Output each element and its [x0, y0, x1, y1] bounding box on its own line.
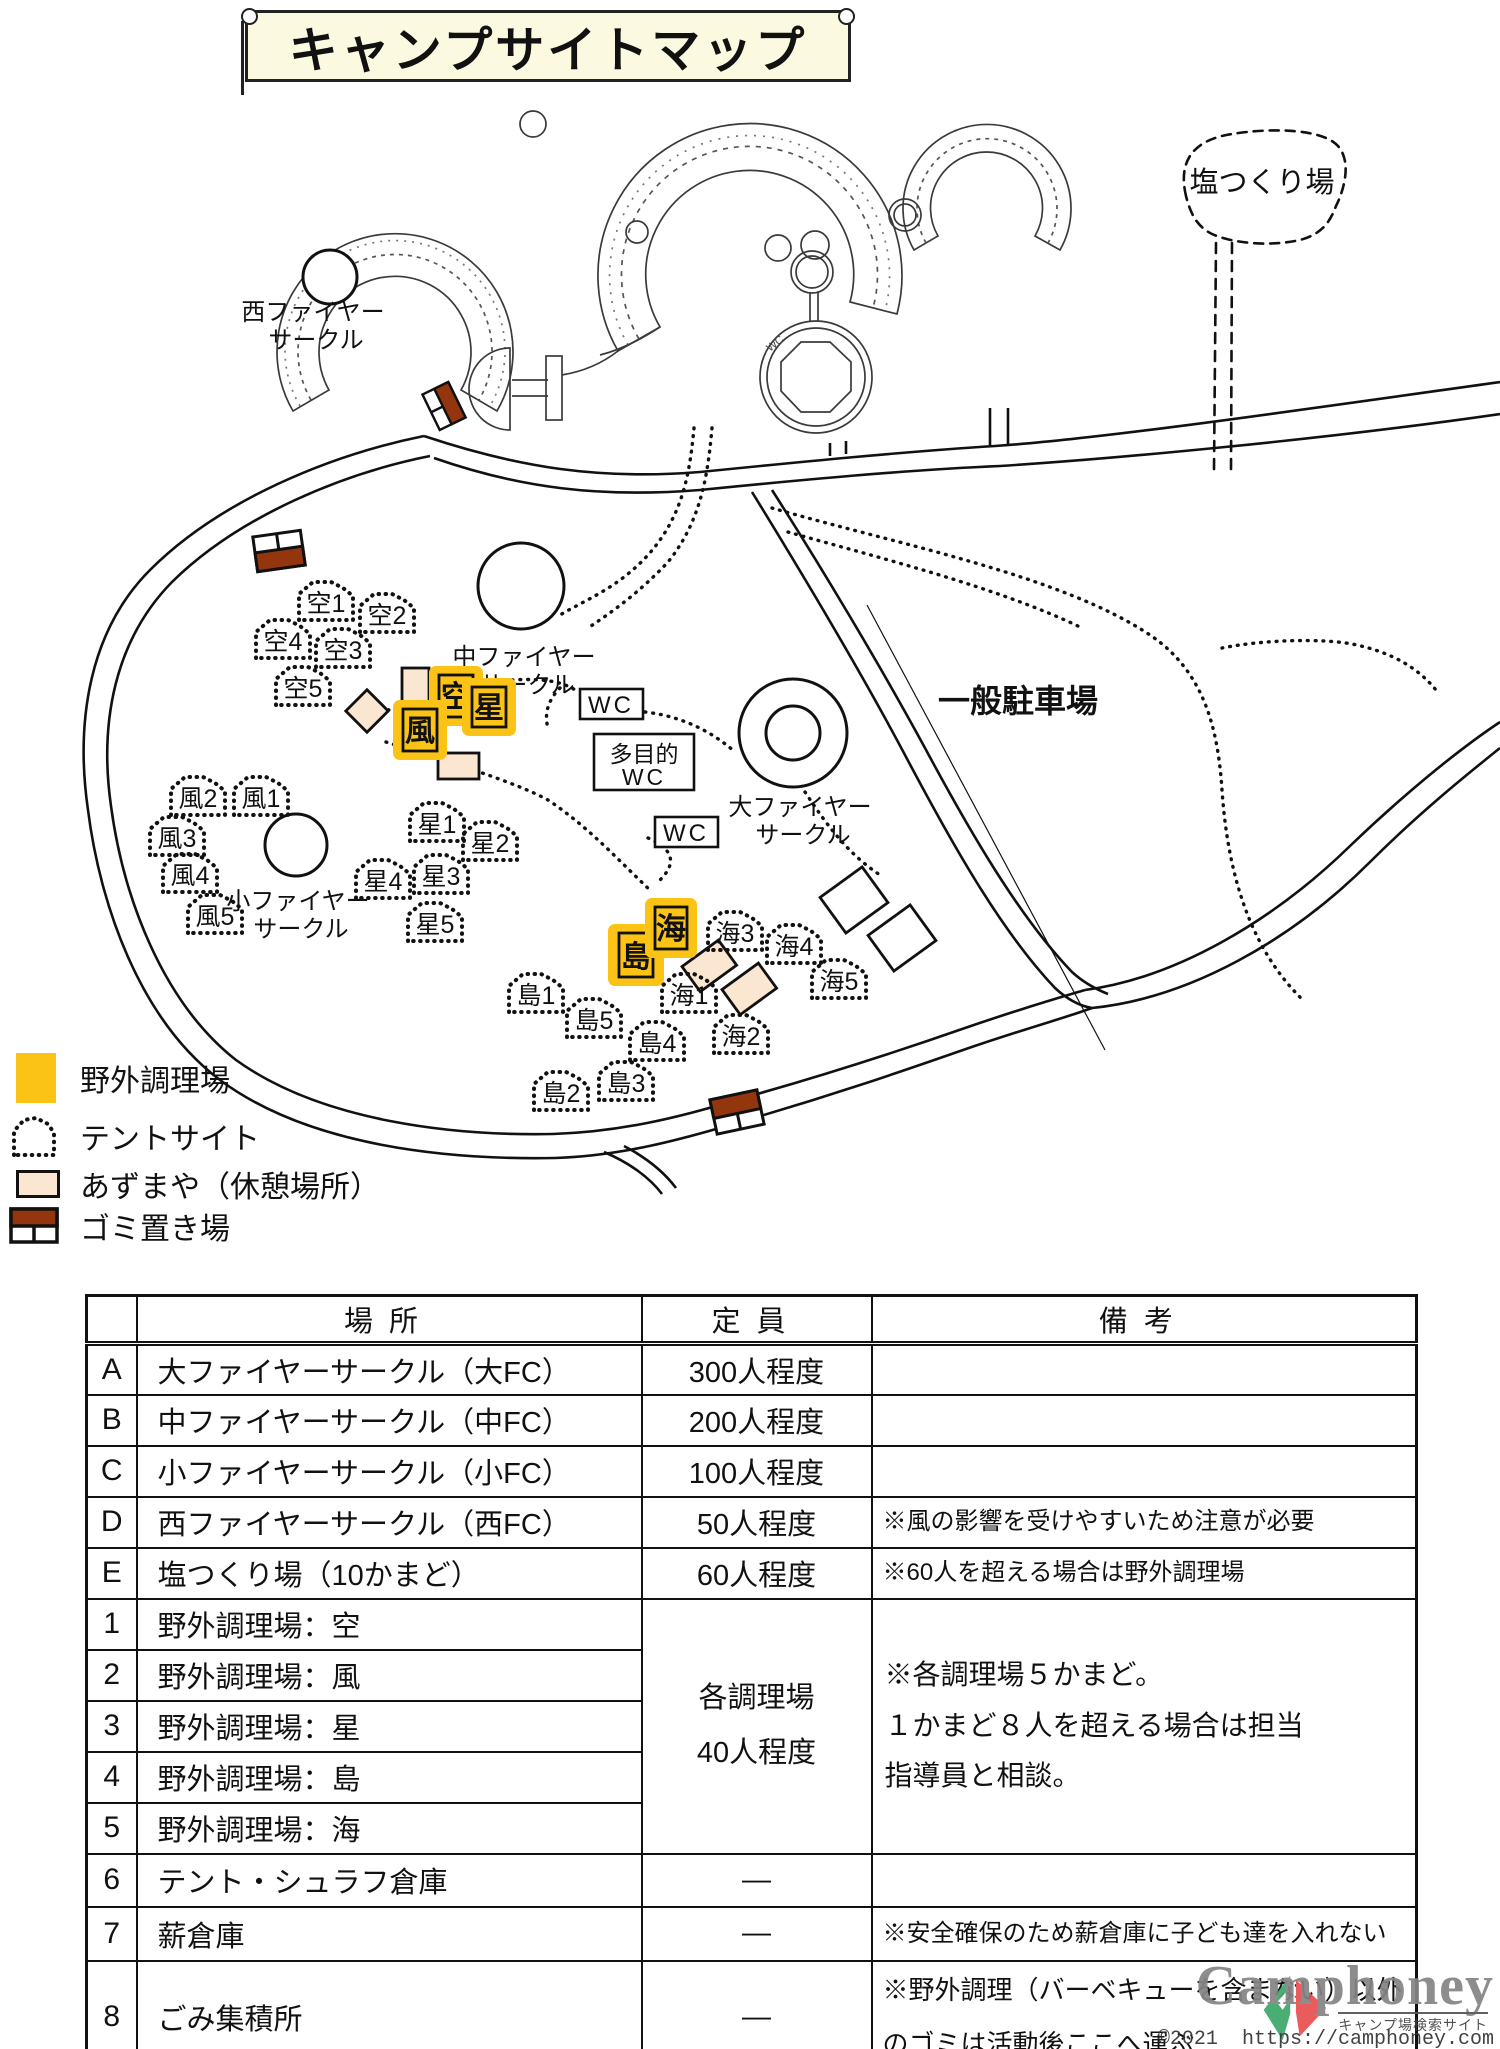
tent-site: 島4 — [630, 1022, 684, 1060]
azumaya-swatch — [16, 1170, 60, 1198]
table-row: E 塩つくり場（10かまど） 60人程度 ※60人を超える場合は野外調理場 — [87, 1548, 1417, 1599]
legend-label: 野外調理場 — [80, 1056, 230, 1100]
garbage-point — [422, 382, 465, 430]
wc-label: WC — [663, 820, 709, 847]
tent-site: 風4 — [163, 854, 217, 892]
svg-text:星2: 星2 — [471, 830, 510, 858]
tent-site: 空3 — [316, 629, 370, 667]
cook-area-umi: 海 — [645, 898, 697, 958]
svg-text:サークル: サークル — [268, 327, 363, 354]
table-row: 7 薪倉庫 — ※安全確保のため薪倉庫に子ども達を入れない — [87, 1907, 1417, 1961]
svg-text:島3: 島3 — [607, 1070, 646, 1098]
cook-area-hoshi: 星 — [462, 678, 516, 736]
legend-label: テントサイト — [80, 1114, 260, 1158]
svg-text:風1: 風1 — [242, 785, 281, 813]
building-complex: WC — [277, 111, 1071, 433]
svg-text:海: 海 — [656, 913, 686, 946]
table-row: D 西ファイヤーサークル（西FC） 50人程度 ※風の影響を受けやすいため注意が… — [87, 1497, 1417, 1548]
merged-capacity-cell: 各調理場 40人程度 — [642, 1599, 872, 1854]
svg-text:海5: 海5 — [820, 968, 859, 996]
copyright-url: ©2021 https://camphoney.com — [1158, 2028, 1494, 2049]
legend-item-garbage: ゴミ置き場 — [8, 1204, 230, 1248]
tent-site: 風5 — [188, 895, 242, 933]
capacity-table: 場所 定員 備考 A 大ファイヤーサークル（大FC） 300人程度 B 中ファイ… — [85, 1294, 1415, 2049]
svg-text:小ファイヤー: 小ファイヤー — [226, 888, 369, 915]
tent-site: 海2 — [714, 1015, 768, 1053]
big-fc-inner-circle — [766, 706, 820, 760]
svg-text:海4: 海4 — [775, 933, 814, 961]
mid-fc-circle — [478, 543, 564, 629]
garbage-area-icon — [8, 1207, 62, 1245]
svg-text:西ファイヤー: 西ファイヤー — [241, 299, 384, 326]
campsite-map-page: キャンプサイトマップ — [0, 0, 1500, 2049]
tent-site: 海1 — [662, 974, 716, 1012]
svg-text:星: 星 — [474, 692, 504, 725]
site-url: https://camphoney.com — [1242, 2028, 1494, 2049]
svg-text:風3: 風3 — [158, 825, 197, 853]
svg-text:島1: 島1 — [517, 982, 556, 1010]
tent-site: 星1 — [410, 803, 464, 841]
svg-text:星5: 星5 — [416, 911, 455, 939]
legend-item-cooking: 野外調理場 — [8, 1053, 230, 1103]
table-row: B 中ファイヤーサークル（中FC） 200人程度 — [87, 1395, 1417, 1446]
svg-text:大ファイヤー: 大ファイヤー — [728, 794, 871, 821]
tent-site: 風2 — [171, 777, 225, 815]
legend-item-tent: テントサイト — [8, 1114, 260, 1158]
tent-site: 島2 — [534, 1072, 588, 1110]
svg-text:海2: 海2 — [722, 1023, 761, 1051]
cook-area-kaze: 風 — [393, 700, 447, 760]
tent-site: 星4 — [356, 860, 410, 898]
svg-text:空2: 空2 — [368, 602, 407, 630]
tent-site: 星3 — [414, 855, 468, 893]
garbage-point — [253, 530, 305, 571]
tent-site: 空4 — [256, 620, 310, 658]
legend-label: ゴミ置き場 — [80, 1204, 230, 1248]
tent-site: 星5 — [408, 903, 462, 941]
header-corner — [87, 1296, 137, 1344]
svg-text:島4: 島4 — [638, 1030, 677, 1058]
cooking-area-swatch — [16, 1053, 56, 1103]
tent-site: 島3 — [599, 1062, 653, 1100]
tent-site: 海5 — [812, 960, 866, 998]
svg-text:島2: 島2 — [542, 1080, 581, 1108]
garbage-point — [710, 1090, 764, 1134]
tent-site: 海3 — [708, 912, 762, 950]
tent-site: 星2 — [463, 822, 517, 860]
tent-site: 風3 — [150, 817, 204, 855]
building-wc-label: WC — [764, 334, 786, 355]
small-fc-circle — [265, 814, 327, 876]
header-capacity: 定員 — [642, 1296, 872, 1344]
parking-label: 一般駐車場 — [938, 683, 1098, 719]
legend-item-azumaya: あずまや（休憩場所） — [8, 1162, 380, 1206]
tent-site: 空1 — [299, 582, 353, 620]
camphoney-watermark: Camphoney キャンプ場検索サイト ©2021 https://camph… — [1138, 1962, 1498, 2048]
header-place: 場所 — [137, 1296, 642, 1344]
svg-text:風5: 風5 — [196, 903, 235, 931]
svg-text:風4: 風4 — [171, 862, 210, 890]
svg-text:サークル: サークル — [755, 822, 850, 849]
svg-text:空1: 空1 — [307, 590, 346, 618]
svg-text:空3: 空3 — [324, 637, 363, 665]
tent-site: 空2 — [360, 594, 414, 632]
table-row: 6 テント・シュラフ倉庫 — — [87, 1854, 1417, 1907]
svg-text:WC: WC — [622, 764, 666, 790]
table-row: A 大ファイヤーサークル（大FC） 300人程度 — [87, 1344, 1417, 1395]
tent-site-icon — [8, 1114, 60, 1158]
legend-label: あずまや（休憩場所） — [80, 1162, 380, 1206]
svg-text:風: 風 — [405, 715, 435, 748]
svg-text:星4: 星4 — [364, 868, 403, 896]
svg-text:海1: 海1 — [670, 982, 709, 1010]
svg-text:海3: 海3 — [716, 920, 755, 948]
table-header-row: 場所 定員 備考 — [87, 1296, 1417, 1344]
svg-text:星1: 星1 — [418, 811, 457, 839]
merged-note-cell: ※各調理場５かまど。 １かまど８人を超える場合は担当 指導員と相談。 — [872, 1599, 1417, 1854]
wc-label: WC — [588, 692, 634, 719]
table-row: C 小ファイヤーサークル（小FC） 100人程度 — [87, 1446, 1417, 1497]
tent-site: 海4 — [767, 925, 821, 963]
brand-name: Camphoney — [1196, 1954, 1494, 2018]
svg-text:サークル: サークル — [253, 916, 348, 943]
west-fc-circle — [303, 250, 357, 304]
salt-label: 塩つくり場 — [1189, 166, 1334, 199]
tent-site: 空5 — [276, 667, 330, 705]
tent-site: 島1 — [509, 974, 563, 1012]
tent-site: 島5 — [567, 999, 621, 1037]
svg-text:空4: 空4 — [264, 628, 303, 656]
tent-site: 風1 — [234, 777, 288, 815]
svg-text:風2: 風2 — [179, 785, 218, 813]
white-structures — [820, 867, 936, 971]
svg-text:島5: 島5 — [575, 1007, 614, 1035]
svg-text:空5: 空5 — [284, 675, 323, 703]
svg-text:星3: 星3 — [422, 863, 461, 891]
header-note: 備考 — [872, 1296, 1417, 1344]
table-row: 1 野外調理場：空 各調理場 40人程度 ※各調理場５かまど。 １かまど８人を超… — [87, 1599, 1417, 1650]
